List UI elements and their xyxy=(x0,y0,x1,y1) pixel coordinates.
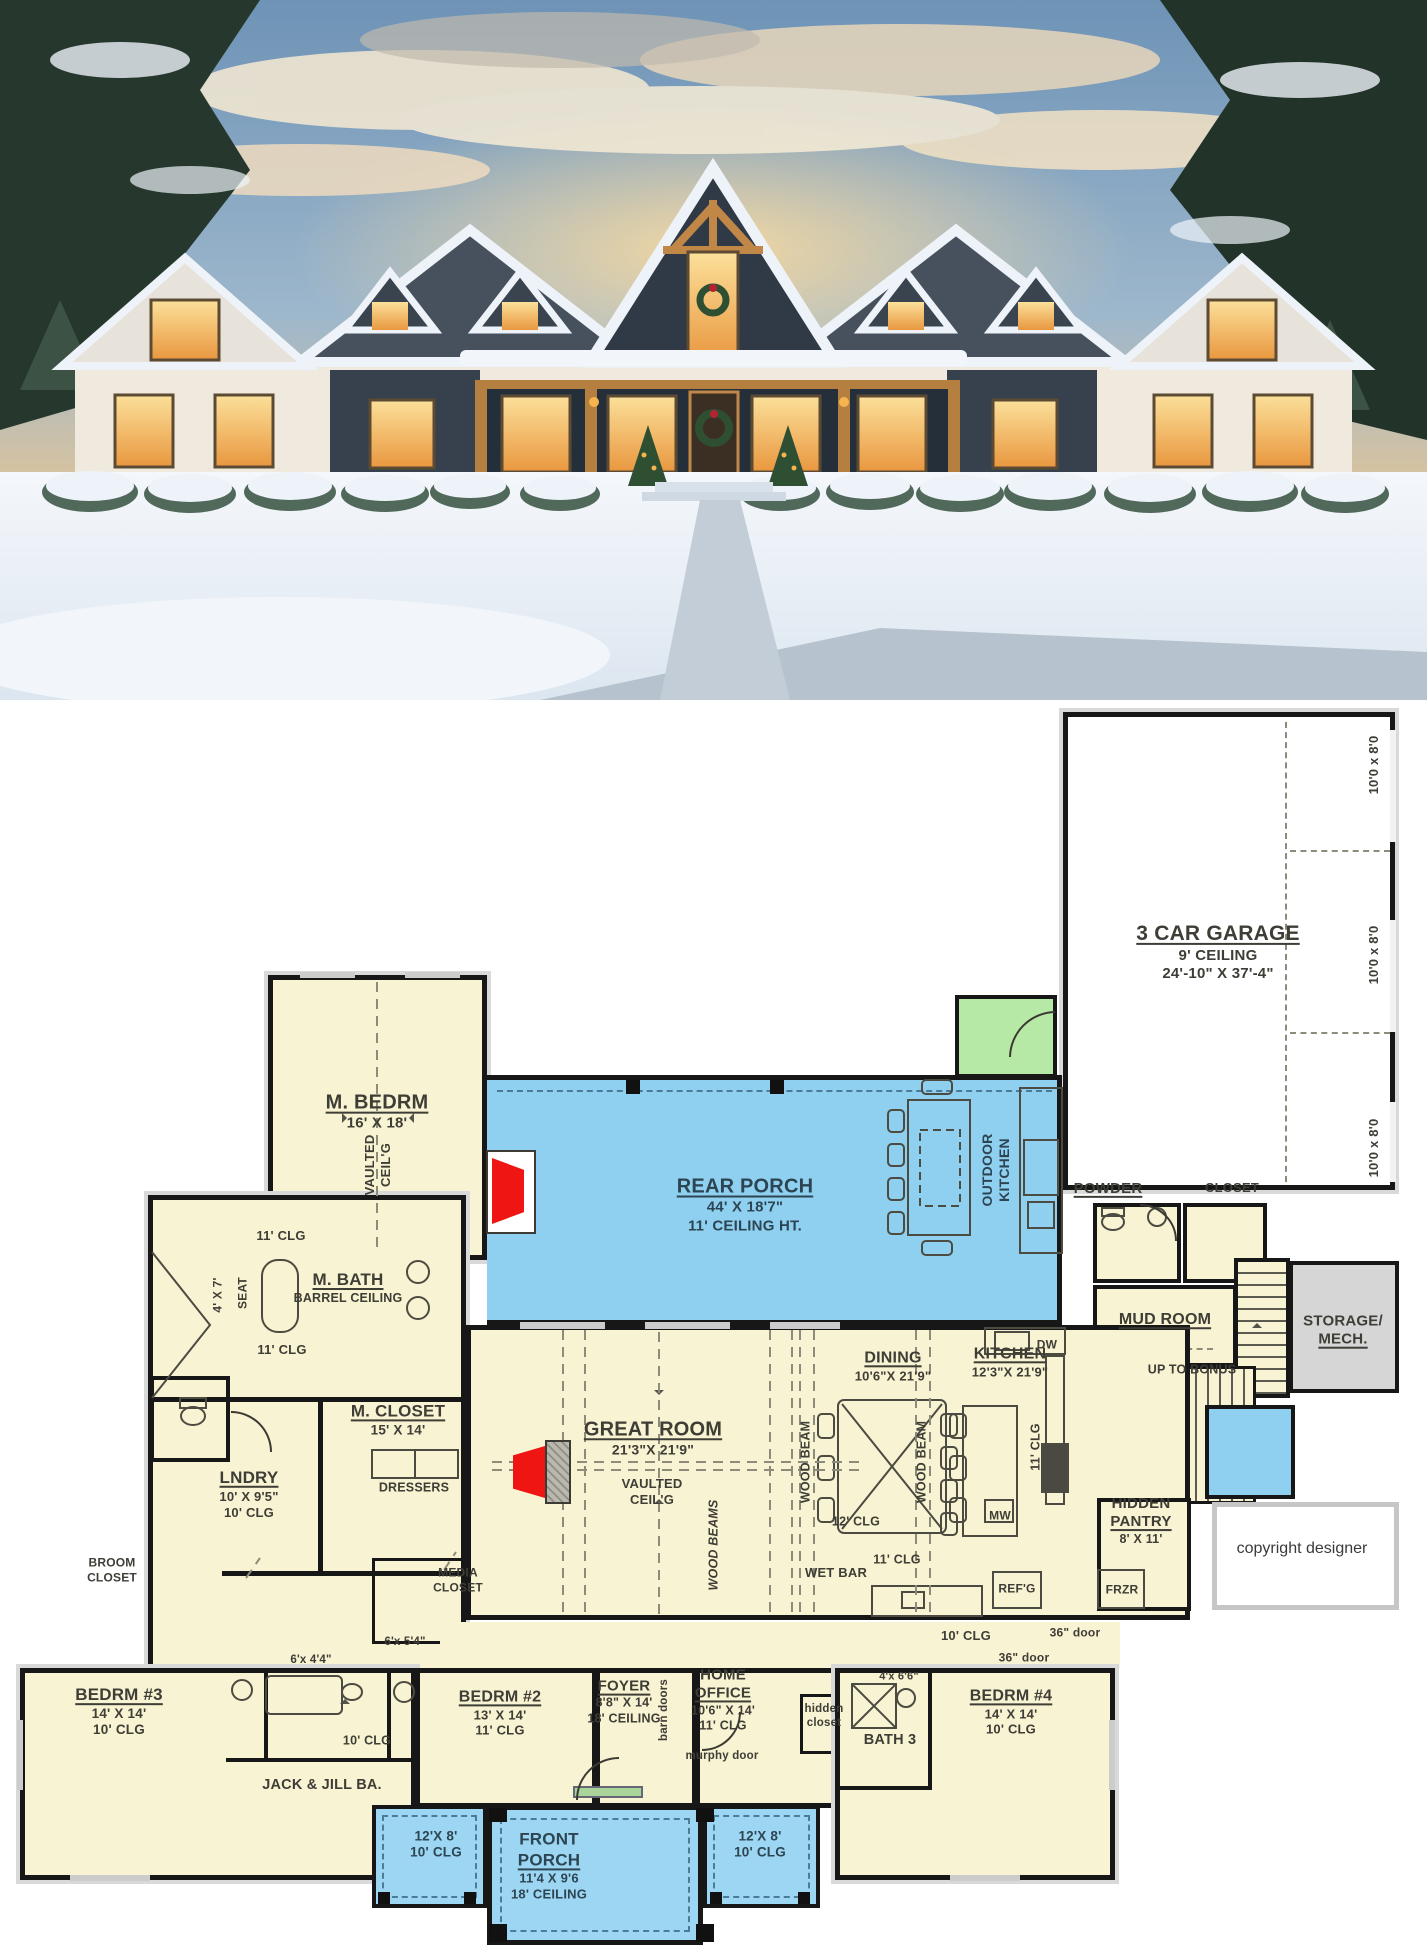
label-great-room: GREAT ROOM21'3"X 21'9" xyxy=(584,1417,722,1458)
label-clg-mbath-2-line0: 11' CLG xyxy=(257,1342,306,1358)
label-garage-door-3-line0: 10'0 x 8'0 xyxy=(1366,1119,1382,1178)
porch-post xyxy=(770,1080,784,1094)
room-side-porch xyxy=(1205,1405,1295,1499)
label-rear-porch-line1: 44' X 18'7" xyxy=(677,1199,813,1217)
label-dressers-line0: DRESSERS xyxy=(379,1480,449,1495)
label-dining-line1: 10'6"X 21'9" xyxy=(855,1368,932,1384)
label-dw: DW xyxy=(1037,1338,1057,1353)
label-garage-door-2: 10'0 x 8'0 xyxy=(1366,926,1382,985)
window xyxy=(645,1322,730,1329)
label-home-office: HOMEOFFICE10'6" X 14'11' CLG xyxy=(691,1666,755,1733)
label-hidden-closet-line1: closet xyxy=(805,1716,844,1730)
label-clg-mbath-2: 11' CLG xyxy=(257,1342,306,1358)
label-home-office-line1: OFFICE xyxy=(691,1685,755,1703)
label-wood-beam-r-line0: WOOD BEAM xyxy=(914,1421,929,1503)
label-m-bath-line0: M. BATH xyxy=(294,1270,403,1291)
label-closet-6x44-line0: 6'x 4'4" xyxy=(290,1653,331,1667)
label-clg-12-line0: 12' CLG xyxy=(832,1514,880,1529)
label-bath3-line0: BATH 3 xyxy=(864,1732,917,1750)
porch-column xyxy=(696,1808,714,1822)
porch-post xyxy=(626,1080,640,1094)
label-clg-10-jj-line0: 10' CLG xyxy=(343,1733,391,1748)
label-hidden-closet: hiddencloset xyxy=(805,1702,844,1730)
label-frzr-line0: FRZR xyxy=(1106,1583,1139,1598)
label-frzr: FRZR xyxy=(1106,1583,1139,1598)
label-great-vaulted: VAULTEDCEIL'G xyxy=(622,1476,683,1508)
label-clg-10-hall-line0: 10' CLG xyxy=(941,1628,991,1644)
label-hidden-pantry-line0: HIDDEN xyxy=(1110,1495,1171,1513)
label-murphy-door: murphy door xyxy=(685,1749,758,1763)
label-wet-bar-line0: WET BAR xyxy=(805,1565,867,1581)
label-home-office-line3: 11' CLG xyxy=(691,1718,755,1733)
room-vestibule xyxy=(955,995,1057,1078)
wall xyxy=(928,1672,932,1790)
label-m-bedrm-line1: 16' X 18' xyxy=(326,1115,429,1133)
label-refg-line0: REF'G xyxy=(998,1582,1035,1597)
label-bedrm4: BEDRM #414' X 14'10' CLG xyxy=(970,1686,1053,1737)
window xyxy=(17,1720,23,1790)
label-great-room-line0: GREAT ROOM xyxy=(584,1417,722,1441)
label-bedrm2-line2: 11' CLG xyxy=(459,1723,542,1739)
label-closet-6x54: 6'x 5'4" xyxy=(384,1635,425,1649)
label-clg-11-dining-line0: 11' CLG xyxy=(873,1552,920,1567)
label-outdoor-kitchen-line1: KITCHEN xyxy=(996,1134,1013,1207)
label-closet-stairs-line0: CLOSET xyxy=(1205,1180,1259,1196)
label-mw-line0: MW xyxy=(989,1509,1011,1524)
label-foyer: FOYER8'8" X 14'18' CEILING xyxy=(587,1678,660,1727)
label-powder: POWDER xyxy=(1074,1180,1143,1198)
label-clg-11-dining: 11' CLG xyxy=(873,1552,920,1567)
window xyxy=(770,1322,840,1329)
label-door36-a-line0: 36" door xyxy=(1050,1626,1101,1641)
label-broom-closet-line1: CLOSET xyxy=(87,1570,137,1585)
label-bedrm4-line0: BEDRM #4 xyxy=(970,1686,1053,1706)
label-hidden-pantry-line1: PANTRY xyxy=(1110,1513,1171,1531)
label-garage-title-line1: 9' CEILING xyxy=(1136,947,1299,965)
porch-column xyxy=(696,1924,714,1942)
label-front-porch-line3: 18' CEILING xyxy=(511,1887,587,1903)
label-m-bedrm-line0: M. BEDRM xyxy=(326,1091,429,1115)
label-media-closet-line0: MEDIA xyxy=(433,1565,483,1580)
label-dressers: DRESSERS xyxy=(379,1480,449,1495)
porch-column xyxy=(798,1892,810,1904)
label-m-bath: M. BATHBARREL CEILING xyxy=(294,1270,403,1306)
label-bedrm2-line0: BEDRM #2 xyxy=(459,1687,542,1707)
label-dw-line0: DW xyxy=(1037,1338,1057,1353)
label-barn-doors-line0: barn doors xyxy=(657,1679,671,1741)
label-mud-room-line0: MUD ROOM xyxy=(1119,1310,1211,1330)
steps xyxy=(642,492,786,501)
label-porch-left-dim-line0: 12'X 8' xyxy=(410,1829,462,1845)
window xyxy=(405,972,460,978)
label-hidden-pantry: HIDDENPANTRY8' X 11' xyxy=(1110,1495,1171,1547)
label-wood-beams-line0: WOOD BEAMS xyxy=(706,1500,721,1591)
label-garage-title-line2: 24'-10" X 37'-4" xyxy=(1136,965,1299,983)
label-foyer-line2: 18' CEILING xyxy=(587,1711,660,1726)
window xyxy=(1109,1720,1115,1790)
label-jack-jill-line0: JACK & JILL BA. xyxy=(262,1777,382,1795)
label-mud-room: MUD ROOM xyxy=(1119,1310,1211,1330)
window xyxy=(950,1875,1020,1881)
label-lndry: LNDRY10' X 9'5"10' CLG xyxy=(219,1468,278,1520)
label-media-closet: MEDIACLOSET xyxy=(433,1565,483,1594)
label-bath3: BATH 3 xyxy=(864,1732,917,1750)
label-wood-beam-l: WOOD BEAM xyxy=(798,1421,813,1503)
label-home-office-line0: HOME xyxy=(691,1666,755,1684)
label-broom-closet: BROOMCLOSET xyxy=(87,1555,137,1584)
window xyxy=(520,1322,605,1329)
label-copyright-line0: copyright designer xyxy=(1237,1539,1368,1559)
label-garage-door-1-line0: 10'0 x 8'0 xyxy=(1366,736,1382,795)
wall xyxy=(837,1786,930,1790)
label-bedrm2-line1: 13' X 14' xyxy=(459,1707,542,1723)
label-bedrm4-line1: 14' X 14' xyxy=(970,1706,1053,1722)
label-m-bedrm-vaulted: VAULTEDCEIL'G xyxy=(362,1135,394,1196)
label-closet-stairs: CLOSET xyxy=(1205,1180,1259,1196)
steps xyxy=(655,482,773,492)
label-porch-right-dim-line0: 12'X 8' xyxy=(734,1829,786,1845)
label-great-vaulted-line1: CEIL'G xyxy=(622,1492,683,1508)
label-m-closet-line1: 15' X 14' xyxy=(351,1422,445,1438)
label-front-porch-line0: FRONT xyxy=(511,1829,587,1850)
label-rear-porch-line2: 11' CEILING HT. xyxy=(677,1217,813,1235)
label-powder-line0: POWDER xyxy=(1074,1180,1143,1198)
label-great-room-line1: 21'3"X 21'9" xyxy=(584,1442,722,1459)
label-door36-a: 36" door xyxy=(1050,1626,1101,1641)
label-home-office-line2: 10'6" X 14' xyxy=(691,1703,755,1718)
label-storage-mech-line0: STORAGE/ xyxy=(1303,1313,1383,1331)
label-great-vaulted-line0: VAULTED xyxy=(622,1476,683,1492)
label-kitchen-line1: 12'3"X 21'9" xyxy=(972,1364,1049,1380)
garage-bay-line xyxy=(1290,1032,1390,1034)
label-foyer-line1: 8'8" X 14' xyxy=(587,1696,660,1711)
porch-column xyxy=(489,1808,507,1822)
label-m-closet-line0: M. CLOSET xyxy=(351,1401,445,1422)
label-porch-right-dim-line1: 10' CLG xyxy=(734,1845,786,1861)
label-closet-4x66: 4'x 6'6" xyxy=(879,1670,919,1683)
exterior-photo-art xyxy=(0,0,1427,700)
label-front-porch: FRONTPORCH11'4 X 9'618' CEILING xyxy=(511,1829,587,1902)
porch-lamp xyxy=(589,397,599,407)
label-porch-left-dim: 12'X 8'10' CLG xyxy=(410,1829,462,1862)
label-front-porch-line1: PORCH xyxy=(511,1850,587,1871)
label-rear-porch: REAR PORCH44' X 18'7"11' CEILING HT. xyxy=(677,1175,813,1236)
label-bedrm4-line2: 10' CLG xyxy=(970,1722,1053,1738)
garage-door-opening xyxy=(1390,1102,1396,1182)
label-bedrm3: BEDRM #314' X 14'10' CLG xyxy=(75,1685,163,1739)
porch-column xyxy=(464,1892,476,1904)
label-garage-title-line0: 3 CAR GARAGE xyxy=(1136,921,1299,947)
label-storage-mech: STORAGE/MECH. xyxy=(1303,1313,1383,1350)
label-hidden-closet-line0: hidden xyxy=(805,1702,844,1716)
label-m-bedrm-vaulted-line1: CEIL'G xyxy=(378,1135,394,1196)
label-broom-closet-line0: BROOM xyxy=(87,1555,137,1570)
label-mw: MW xyxy=(989,1509,1011,1524)
label-bedrm3-line2: 10' CLG xyxy=(75,1722,163,1738)
label-wood-beam-r: WOOD BEAM xyxy=(914,1421,929,1503)
porch-column xyxy=(489,1924,507,1942)
label-lndry-line1: 10' X 9'5" xyxy=(219,1489,278,1505)
label-outdoor-kitchen: OUTDOORKITCHEN xyxy=(979,1134,1013,1207)
label-dining-line0: DINING xyxy=(855,1348,932,1368)
window xyxy=(70,1875,150,1881)
label-clg-mbath-1-line0: 11' CLG xyxy=(256,1228,305,1244)
house-plan-sheet: 3 CAR GARAGE9' CEILING24'-10" X 37'-4"10… xyxy=(0,0,1427,1949)
label-clg-10-hall: 10' CLG xyxy=(941,1628,991,1644)
label-garage-door-2-line0: 10'0 x 8'0 xyxy=(1366,926,1382,985)
exterior-photo xyxy=(0,0,1427,700)
label-seat: SEAT xyxy=(236,1277,251,1309)
label-foyer-line0: FOYER xyxy=(587,1678,660,1696)
label-closet-6x44: 6'x 4'4" xyxy=(290,1653,331,1667)
garage-door-opening xyxy=(1390,920,1396,1032)
label-garage-title: 3 CAR GARAGE9' CEILING24'-10" X 37'-4" xyxy=(1136,921,1299,983)
label-bedrm3-line1: 14' X 14' xyxy=(75,1706,163,1722)
label-media-closet-line1: CLOSET xyxy=(433,1580,483,1595)
label-wood-beams: WOOD BEAMS xyxy=(706,1500,721,1591)
label-dining: DINING10'6"X 21'9" xyxy=(855,1348,932,1383)
label-bedrm2: BEDRM #213' X 14'11' CLG xyxy=(459,1687,542,1738)
label-clg-mbath-1: 11' CLG xyxy=(256,1228,305,1244)
label-refg: REF'G xyxy=(998,1582,1035,1597)
porch-column xyxy=(378,1892,390,1904)
window xyxy=(300,972,355,978)
label-storage-mech-line1: MECH. xyxy=(1303,1331,1383,1349)
wall xyxy=(318,1402,323,1574)
label-garage-door-3: 10'0 x 8'0 xyxy=(1366,1119,1382,1178)
label-clg-11-kitchen: 11' CLG xyxy=(1028,1423,1043,1470)
label-front-porch-line2: 11'4 X 9'6 xyxy=(511,1871,587,1887)
wall xyxy=(226,1758,422,1762)
label-clg-11-kitchen-line0: 11' CLG xyxy=(1028,1423,1043,1470)
label-wet-bar: WET BAR xyxy=(805,1565,867,1581)
greatroom-chimney xyxy=(545,1440,571,1504)
label-barn-doors: barn doors xyxy=(657,1679,671,1741)
garage-bay-line xyxy=(1290,850,1390,852)
room-m-toilet xyxy=(150,1376,230,1462)
label-porch-left-dim-line1: 10' CLG xyxy=(410,1845,462,1861)
label-closet-4x66-line0: 4'x 6'6" xyxy=(879,1670,919,1683)
label-clg-12: 12' CLG xyxy=(832,1514,880,1529)
porch-lamp xyxy=(839,397,849,407)
label-copyright: copyright designer xyxy=(1237,1539,1368,1559)
label-dim-4x7-line0: 4' X 7' xyxy=(211,1277,226,1312)
label-outdoor-kitchen-line0: OUTDOOR xyxy=(979,1134,996,1207)
label-porch-right-dim: 12'X 8'10' CLG xyxy=(734,1829,786,1862)
label-closet-6x54-line0: 6'x 5'4" xyxy=(384,1635,425,1649)
label-clg-10-jj: 10' CLG xyxy=(343,1733,391,1748)
label-m-bath-line1: BARREL CEILING xyxy=(294,1291,403,1306)
label-bedrm3-line0: BEDRM #3 xyxy=(75,1685,163,1706)
garage-door-opening xyxy=(1390,730,1396,842)
label-lndry-line2: 10' CLG xyxy=(219,1504,278,1520)
label-door36-b-line0: 36" door xyxy=(999,1651,1050,1666)
label-up-to-bonus-line0: UP TO BONUS xyxy=(1148,1362,1237,1377)
label-lndry-line0: LNDRY xyxy=(219,1468,278,1489)
entry-step xyxy=(573,1786,643,1798)
label-jack-jill: JACK & JILL BA. xyxy=(262,1777,382,1795)
room-powder xyxy=(1093,1203,1181,1283)
label-rear-porch-line0: REAR PORCH xyxy=(677,1175,813,1199)
porch-column xyxy=(710,1892,722,1904)
label-dim-4x7: 4' X 7' xyxy=(211,1277,226,1312)
label-hidden-pantry-line2: 8' X 11' xyxy=(1110,1532,1171,1547)
label-up-to-bonus: UP TO BONUS xyxy=(1148,1362,1237,1377)
label-wood-beam-l-line0: WOOD BEAM xyxy=(798,1421,813,1503)
label-m-bedrm: M. BEDRM16' X 18' xyxy=(326,1091,429,1134)
floor-plan: 3 CAR GARAGE9' CEILING24'-10" X 37'-4"10… xyxy=(0,700,1427,1949)
label-m-bedrm-vaulted-line0: VAULTED xyxy=(362,1135,378,1196)
label-murphy-door-line0: murphy door xyxy=(685,1749,758,1763)
label-door36-b: 36" door xyxy=(999,1651,1050,1666)
label-m-closet: M. CLOSET15' X 14' xyxy=(351,1401,445,1438)
label-seat-line0: SEAT xyxy=(236,1277,251,1309)
label-garage-door-1: 10'0 x 8'0 xyxy=(1366,736,1382,795)
wall xyxy=(264,1672,268,1758)
